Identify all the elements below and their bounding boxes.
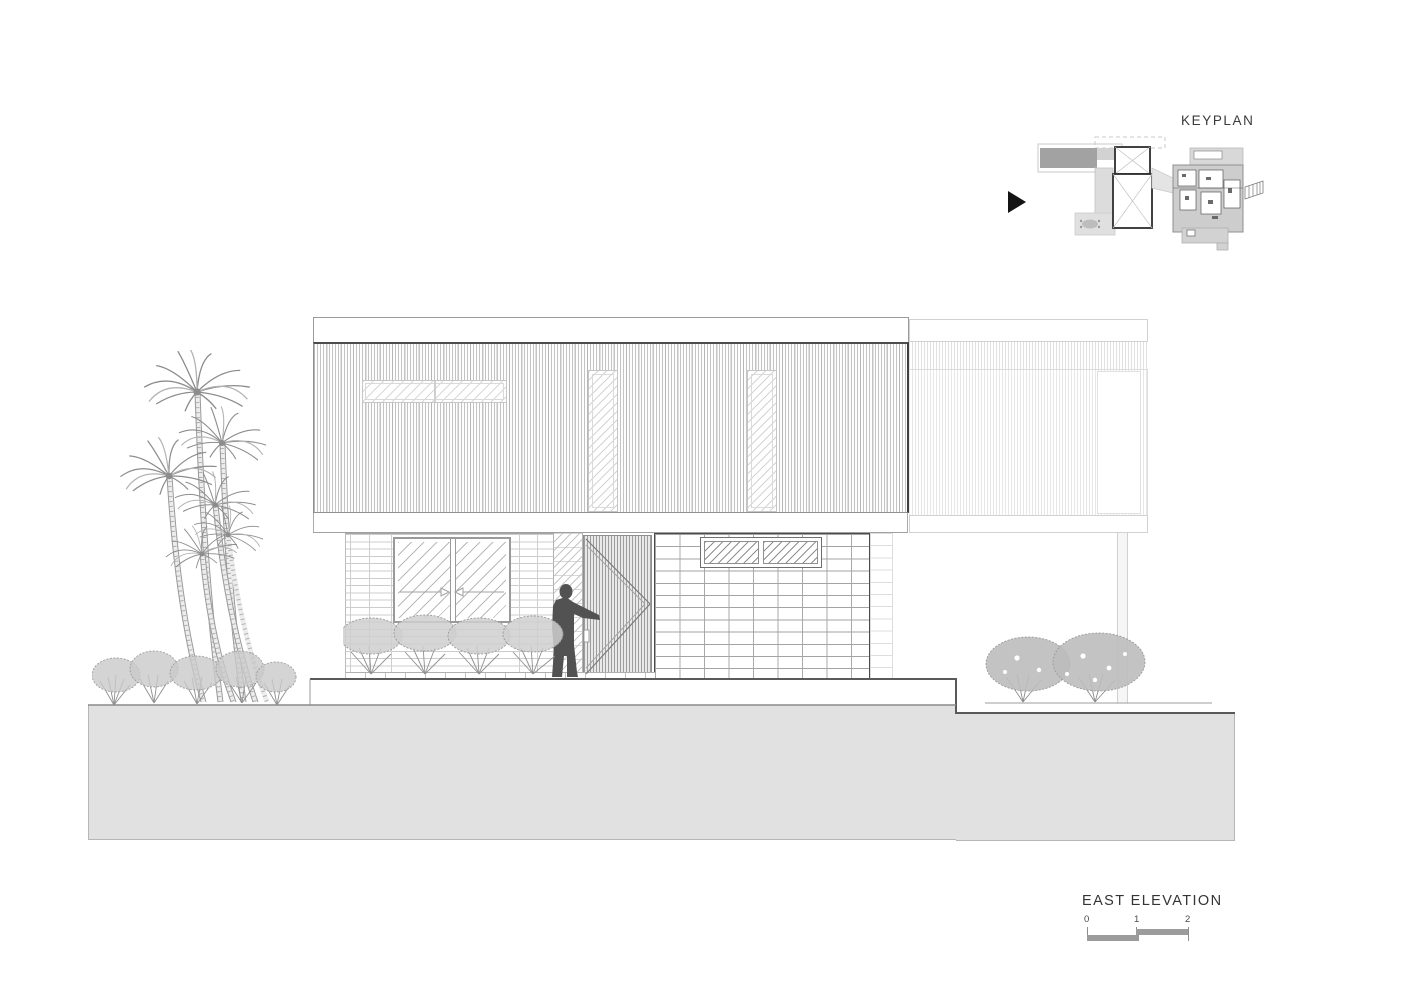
planter-hedge [343, 612, 565, 676]
scale-segment-0-1 [1087, 935, 1139, 941]
elevation-title: EAST ELEVATION [1082, 893, 1222, 909]
scale-segment-1-2 [1136, 929, 1188, 935]
door-handle [584, 630, 589, 642]
scale-label-0: 0 [1084, 914, 1089, 925]
scale-label-2: 2 [1185, 914, 1190, 925]
scale-tick [1188, 927, 1189, 941]
scale-bar: 0 1 2 [1084, 914, 1192, 944]
ground-bushes-right [983, 630, 1153, 706]
ground-bushes-left [92, 633, 297, 708]
scale-label-1: 1 [1134, 914, 1139, 925]
elevation-drawing-canvas: KEYPLAN [0, 0, 1415, 1000]
